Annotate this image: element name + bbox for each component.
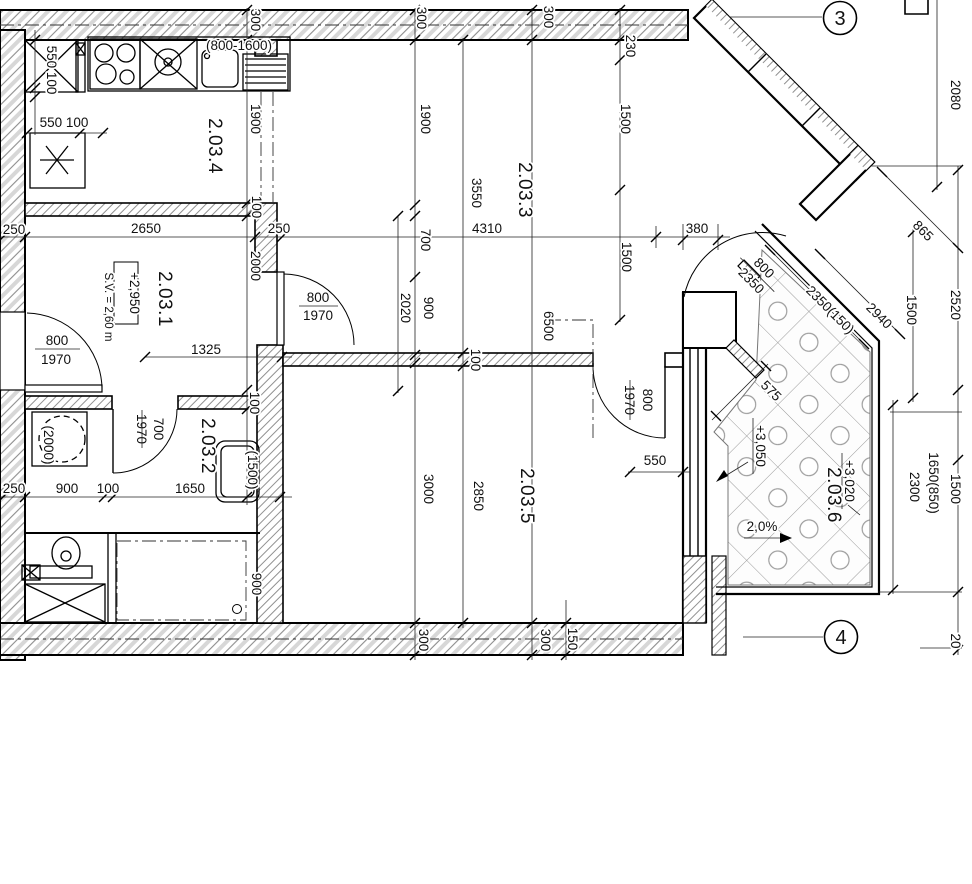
floor-plan-page: 3 4 +3,050 +3,020 2,0% 300 300 300 230 (… <box>0 0 972 879</box>
dim-900-mid: 900 <box>421 297 436 320</box>
dim-1900-left: 1900 <box>248 104 263 134</box>
floor-plan-drawing: 3 4 +3,050 +3,020 2,0% 300 300 300 230 (… <box>0 0 972 879</box>
dim-2520: 2520 <box>948 290 963 320</box>
dim-230: 230 <box>623 35 638 58</box>
dim-wall-300-3: 300 <box>541 6 556 29</box>
dim-100-a: 100 <box>249 196 264 219</box>
dim-865: 865 <box>910 218 937 245</box>
dim-250-l: 250 <box>3 222 26 237</box>
dim-2650: 2650 <box>131 221 161 236</box>
dim-1900-mid: 1900 <box>418 104 433 134</box>
dim-1325: 1325 <box>191 342 221 357</box>
window-range-label: (800-1600) <box>206 38 272 53</box>
room-label-2-03-2: 2.03.2 <box>197 418 218 474</box>
dim-1500-mid: 1500 <box>619 242 634 272</box>
hall-door-height: 1970 <box>303 308 333 323</box>
dim-1500-top: 1500 <box>618 104 633 134</box>
wall-bath-divider-b <box>178 396 257 409</box>
doors <box>0 272 665 473</box>
washer-label: (2000) <box>41 425 56 464</box>
section-marker-3: 3 <box>834 8 845 30</box>
dim-3000: 3000 <box>421 474 436 504</box>
dim-4310: 4310 <box>472 221 502 236</box>
wall-stub-balcony <box>712 556 726 655</box>
bath-door-width: 700 <box>151 418 166 441</box>
dim-300-bottom-1: 300 <box>416 629 431 652</box>
room-label-2-03-6: 2.03.6 <box>823 467 844 523</box>
wall-kitchen-divider <box>25 203 255 216</box>
dim-wall-300-2: 300 <box>414 7 429 30</box>
dim-3550: 3550 <box>469 178 484 208</box>
dim-550-100-h: 550 100 <box>40 115 89 130</box>
dim-900-void: 900 <box>249 573 264 596</box>
dim-wall-300-1: 300 <box>248 9 263 32</box>
hall-door-width: 800 <box>307 290 330 305</box>
sink-bowl <box>202 50 238 87</box>
dim-1500-right: 1500 <box>904 295 919 325</box>
void-outline <box>117 541 246 620</box>
wall-partition-cap <box>665 353 683 367</box>
dim-20: 20 <box>948 633 963 648</box>
room-label-2-03-4: 2.03.4 <box>204 118 225 174</box>
dim-1500-window: 1500 <box>948 474 963 504</box>
living-door-height: 1970 <box>622 385 637 415</box>
bathtub-label: (1500) <box>245 450 260 489</box>
balcony-floor <box>714 250 870 585</box>
dim-6500: 6500 <box>541 311 556 341</box>
dim-2850: 2850 <box>471 481 486 511</box>
room-1-level: +2,950 <box>127 272 142 314</box>
dim-550-100-v: 550 100 <box>44 46 59 95</box>
dim-300-bottom-2: 300 <box>538 629 553 652</box>
dim-2080: 2080 <box>948 80 963 110</box>
dim-100-b: 100 <box>247 392 262 415</box>
dim-2300: 2300 <box>907 472 922 502</box>
entry-door-height: 1970 <box>41 352 71 367</box>
entry-door-leaf <box>25 385 102 392</box>
room-1-clear-height: S.V. = 2,60 m <box>102 273 114 342</box>
section-marker-4: 4 <box>835 627 846 649</box>
room-label-2-03-5: 2.03.5 <box>516 468 537 524</box>
dim-1650-850: 1650(850) <box>926 452 941 514</box>
entry-door-opening <box>0 312 25 390</box>
dim-2940: 2940 <box>863 300 895 332</box>
dim-700-mid: 700 <box>418 229 433 252</box>
dim-100-bath: 100 <box>97 481 120 496</box>
slope-label: 2,0% <box>747 519 778 534</box>
wall-bath-divider-a <box>25 396 112 409</box>
wall-partition <box>283 353 593 366</box>
boiler-asterisk-icon <box>40 146 74 174</box>
dim-250-bath: 250 <box>3 481 26 496</box>
toilet <box>30 537 92 578</box>
balcony <box>714 224 879 594</box>
dim-380: 380 <box>686 221 709 236</box>
dim-2020: 2020 <box>398 293 413 323</box>
entry-door-width: 800 <box>46 333 69 348</box>
wall-corner-bump <box>683 292 736 348</box>
level-3050: +3,050 <box>753 425 768 467</box>
room-label-2-03-3: 2.03.3 <box>514 162 535 218</box>
hall-door-leaf <box>277 272 284 345</box>
living-door-width: 800 <box>640 389 655 412</box>
dim-550: 550 <box>644 453 667 468</box>
dim-100-c: 100 <box>468 349 483 372</box>
bath-door-height: 1970 <box>134 414 149 444</box>
dim-900-bath: 900 <box>56 481 79 496</box>
room-label-2-03-1: 2.03.1 <box>154 271 175 327</box>
dim-250-r: 250 <box>268 221 291 236</box>
dim-2000: 2000 <box>248 251 263 281</box>
dim-1650-bath: 1650 <box>175 481 205 496</box>
washing-machine <box>32 412 87 466</box>
dim-150-bottom: 150 <box>565 628 580 651</box>
